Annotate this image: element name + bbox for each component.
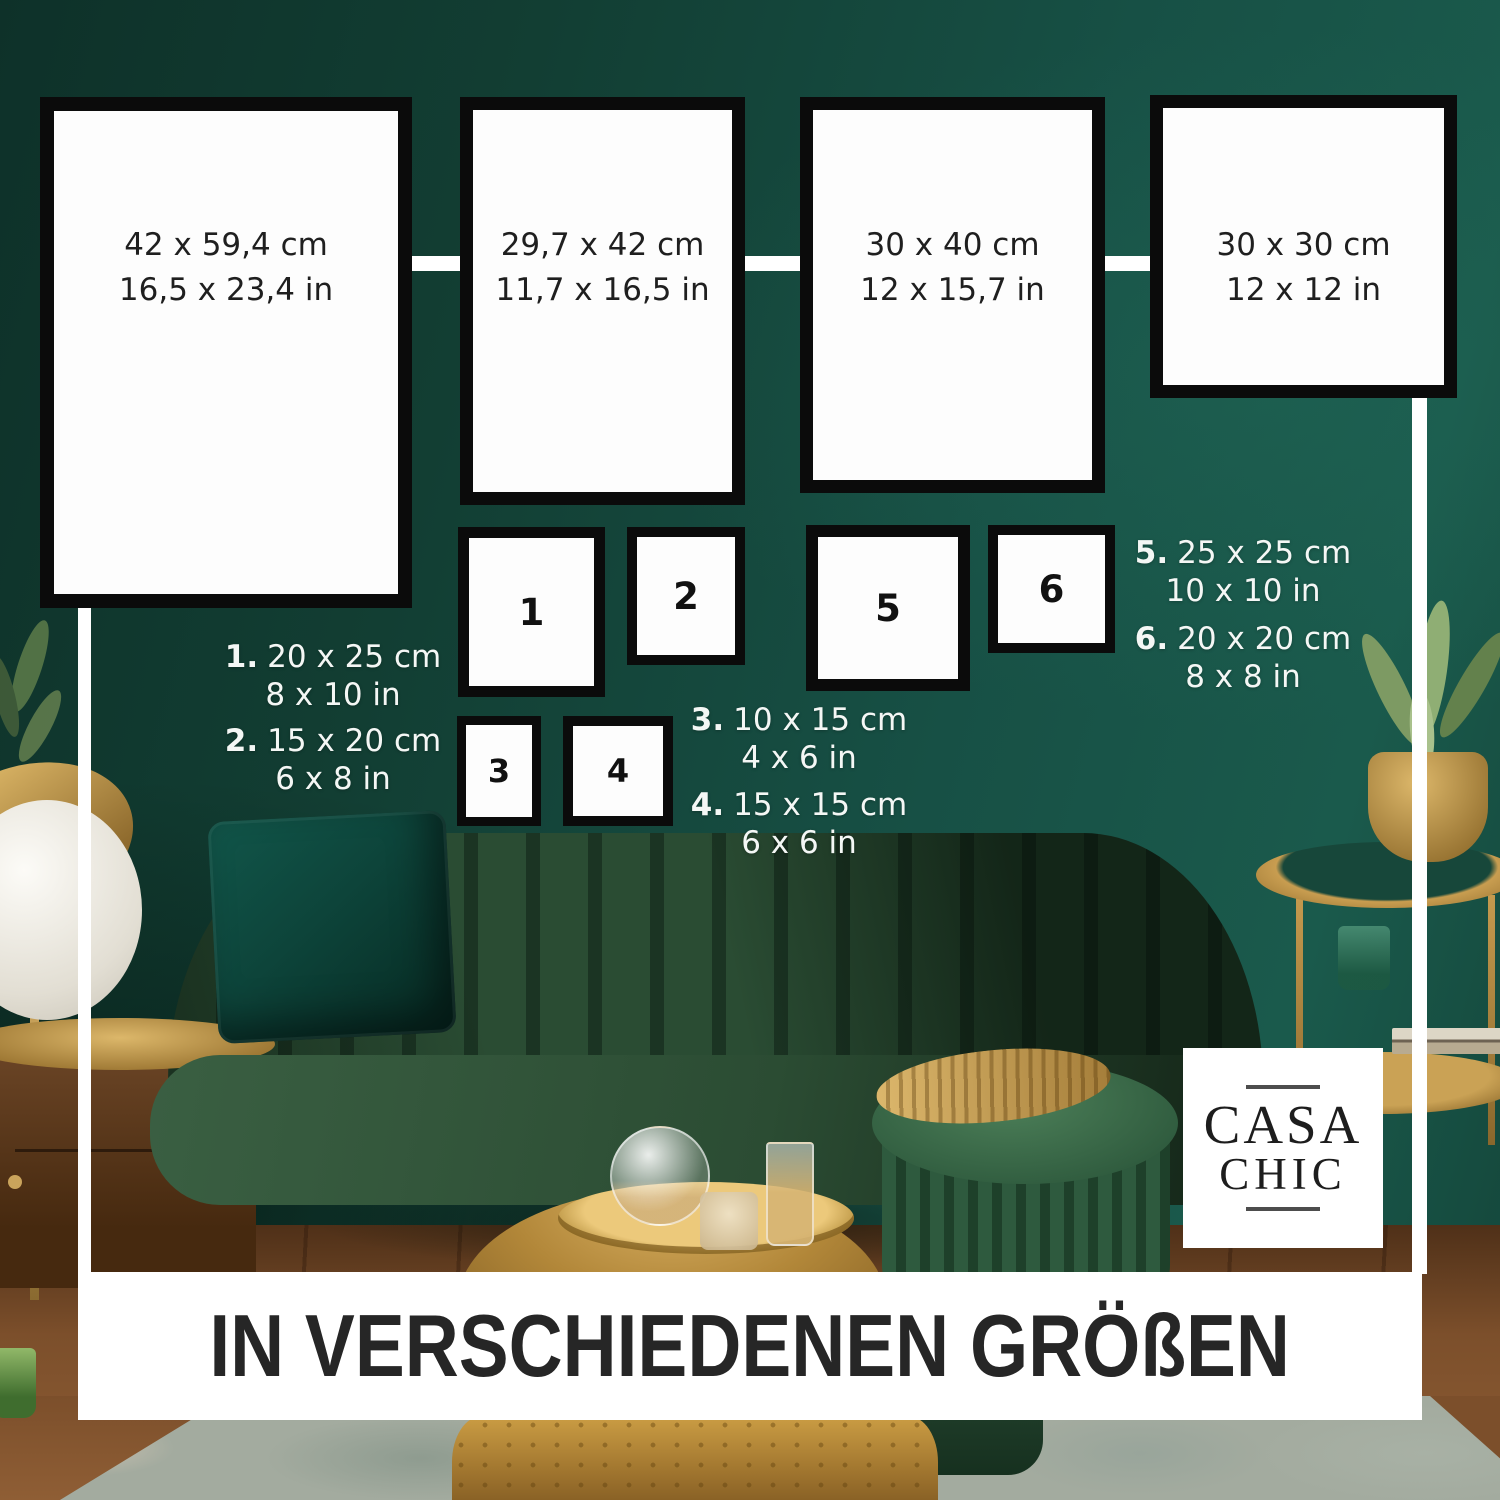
legend-size-in: 8 x 8 in — [1122, 658, 1364, 696]
hammered-gold-drum-table — [452, 1416, 938, 1500]
frame-size-text: 29,7 x 42 cm 11,7 x 16,5 in — [473, 223, 732, 313]
right-vertical-line — [1412, 396, 1427, 1274]
legend-size-cm: 2.15 x 20 cm — [218, 722, 448, 760]
legend-size-in: 6 x 8 in — [218, 760, 448, 798]
logo-brand-line1: CASA — [1204, 1097, 1363, 1152]
logo-brand-line2: CHIC — [1219, 1152, 1347, 1197]
size-legend-item-3: 3.10 x 15 cm 4 x 6 in — [684, 701, 914, 777]
legend-size-in: 6 x 6 in — [684, 824, 914, 862]
legend-index: 3. — [691, 702, 724, 738]
size-legend-item-4: 4.15 x 15 cm 6 x 6 in — [684, 786, 914, 862]
product-size-guide-image: 42 x 59,4 cm 16,5 x 23,4 in 29,7 x 42 cm… — [0, 0, 1500, 1500]
legend-index: 5. — [1135, 535, 1168, 571]
legend-size-cm: 4.15 x 15 cm — [684, 786, 914, 824]
legend-size-in: 4 x 6 in — [684, 739, 914, 777]
numbered-frame-1: 1 — [458, 527, 605, 697]
legend-index: 6. — [1135, 621, 1168, 657]
legend-index: 1. — [225, 639, 258, 675]
size-cm: 42 x 59,4 cm — [54, 223, 398, 268]
frame-size-30x30: 30 x 30 cm 12 x 12 in — [1150, 95, 1457, 398]
frame-size-30x40: 30 x 40 cm 12 x 15,7 in — [800, 97, 1105, 493]
frame-size-text: 30 x 40 cm 12 x 15,7 in — [813, 223, 1092, 313]
legend-size-in: 10 x 10 in — [1122, 572, 1364, 610]
numbered-frame-4: 4 — [563, 716, 673, 826]
numbered-frame-5: 5 — [806, 525, 970, 691]
legend-size-cm: 5.25 x 25 cm — [1122, 534, 1364, 572]
left-vertical-line — [78, 606, 91, 1274]
frame-number: 3 — [488, 752, 510, 790]
numbered-frame-6: 6 — [988, 525, 1115, 653]
logo-bottom-rule — [1246, 1207, 1320, 1211]
legend-size-in: 8 x 10 in — [218, 676, 448, 714]
frame-size-42x59: 42 x 59,4 cm 16,5 x 23,4 in — [40, 97, 412, 608]
banner-strip: IN VERSCHIEDENEN GRÖßEN — [78, 1272, 1422, 1420]
size-cm: 30 x 30 cm — [1163, 223, 1444, 268]
size-legend-item-2: 2.15 x 20 cm 6 x 8 in — [218, 722, 448, 798]
numbered-frame-3: 3 — [457, 716, 541, 826]
green-vase-bottom-left — [0, 1348, 36, 1418]
frame-size-text: 42 x 59,4 cm 16,5 x 23,4 in — [54, 223, 398, 313]
brass-plant-pot — [1368, 752, 1488, 862]
frame-number: 5 — [875, 587, 901, 630]
green-velvet-pillow — [207, 810, 456, 1044]
frame-number: 6 — [1039, 568, 1065, 611]
size-legend-item-1: 1.20 x 25 cm 8 x 10 in — [218, 638, 448, 714]
logo-top-rule — [1246, 1085, 1320, 1089]
frame-size-29x42: 29,7 x 42 cm 11,7 x 16,5 in — [460, 97, 745, 505]
frame-number: 2 — [673, 575, 699, 618]
size-in: 16,5 x 23,4 in — [54, 268, 398, 313]
size-legend-item-6: 6.20 x 20 cm 8 x 8 in — [1122, 620, 1364, 696]
banner-headline: IN VERSCHIEDENEN GRÖßEN — [210, 1295, 1291, 1397]
numbered-frame-2: 2 — [627, 527, 745, 665]
size-in: 12 x 12 in — [1163, 268, 1444, 313]
glass-bowl-vase — [610, 1126, 710, 1226]
gold-table-leg — [1488, 895, 1495, 1145]
votive-candle-glass — [700, 1192, 758, 1250]
size-cm: 30 x 40 cm — [813, 223, 1092, 268]
side-table-knob — [8, 1175, 22, 1189]
size-cm: 29,7 x 42 cm — [473, 223, 732, 268]
frame-number: 1 — [519, 591, 545, 634]
legend-index: 2. — [225, 723, 258, 759]
frame-number: 4 — [607, 752, 629, 790]
legend-index: 4. — [691, 787, 724, 823]
book-stack — [1392, 1028, 1500, 1054]
casa-chic-logo: CASA CHIC — [1183, 1048, 1383, 1248]
green-drinking-glass — [1338, 926, 1390, 990]
size-in: 12 x 15,7 in — [813, 268, 1092, 313]
legend-size-cm: 1.20 x 25 cm — [218, 638, 448, 676]
legend-size-cm: 6.20 x 20 cm — [1122, 620, 1364, 658]
size-legend-item-5: 5.25 x 25 cm 10 x 10 in — [1122, 534, 1364, 610]
legend-size-cm: 3.10 x 15 cm — [684, 701, 914, 739]
tall-drinking-glass — [766, 1142, 814, 1246]
size-in: 11,7 x 16,5 in — [473, 268, 732, 313]
frame-size-text: 30 x 30 cm 12 x 12 in — [1163, 223, 1444, 313]
